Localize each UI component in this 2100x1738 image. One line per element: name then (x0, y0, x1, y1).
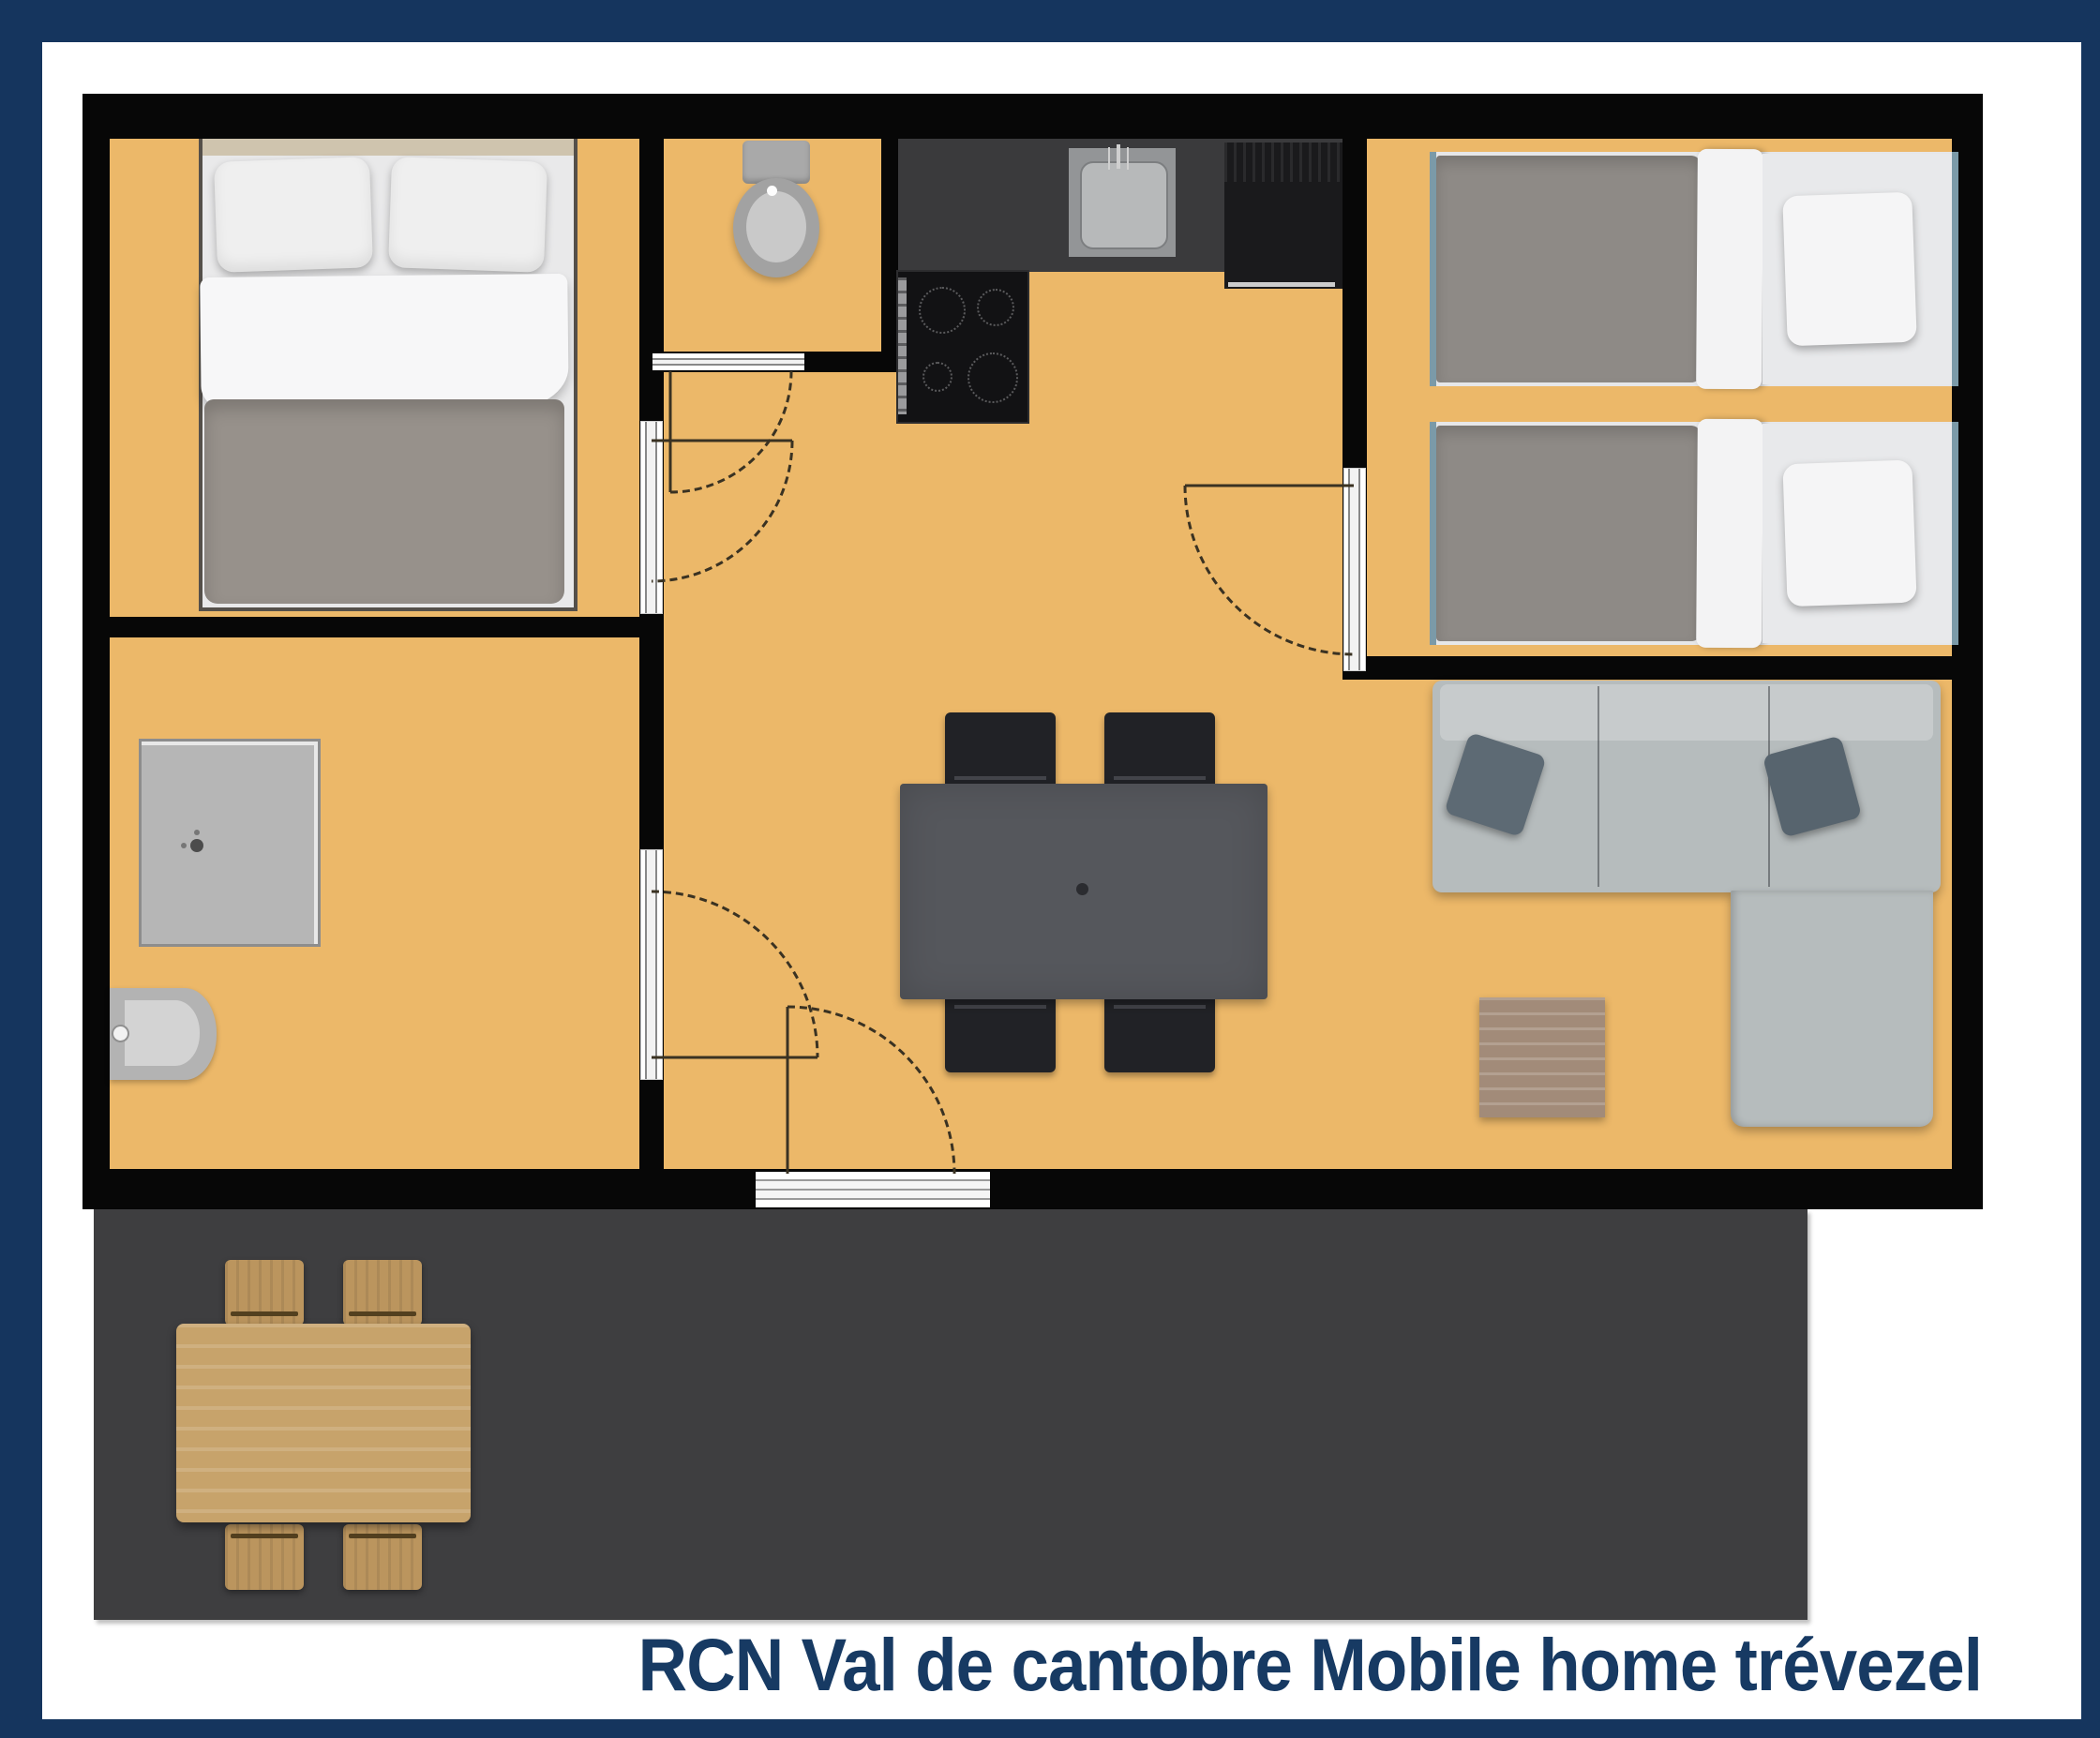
sofa-pillow (1762, 735, 1862, 837)
wall-twin-bedroom-bottom (1342, 656, 1952, 680)
bathroom-sink-basin (125, 1000, 200, 1066)
kitchen-sink-basin (1080, 161, 1168, 249)
dining-chair (1104, 992, 1215, 1072)
sofa-pillow (1444, 732, 1547, 837)
chair-back-line (349, 1534, 416, 1538)
door-entrance (756, 1172, 990, 1207)
burner-icon (919, 287, 966, 334)
bathroom-sink-faucet-icon (113, 1026, 127, 1041)
terrace-chair (343, 1524, 422, 1590)
dining-chair (1104, 712, 1215, 793)
terrace-chair (225, 1260, 304, 1326)
single-bed-sheet-fold (1696, 419, 1763, 648)
double-bed-sheet-fold (200, 274, 569, 414)
cooktop-controls (898, 277, 907, 414)
dining-chair (945, 712, 1056, 793)
chair-seat-line (1114, 776, 1206, 780)
terrace-table (176, 1324, 471, 1522)
chair-seat-line (954, 776, 1046, 780)
toilet (733, 178, 819, 277)
shower (139, 739, 321, 947)
burner-icon (922, 362, 952, 392)
caption-title: RCN Val de cantobre Mobile home trévezel (638, 1622, 1982, 1708)
sofa-backrest (1440, 684, 1933, 741)
double-bed-headboard (202, 139, 574, 156)
dining-table (900, 784, 1267, 999)
chair-back-line (231, 1534, 298, 1538)
pillow (214, 157, 373, 273)
bathroom-sink (110, 988, 217, 1080)
sofa-chaise-section (1731, 891, 1933, 1127)
rug (1479, 997, 1605, 1117)
door-master-bedroom (640, 421, 663, 614)
terrace-chair (343, 1260, 422, 1326)
chair-seat-line (954, 1005, 1046, 1009)
refrigerator (1224, 142, 1342, 289)
chair-seat-line (1114, 1005, 1206, 1009)
door-wc (652, 353, 804, 370)
shower-head-icon (190, 839, 203, 852)
sofa-main-section (1432, 681, 1941, 892)
toilet-bowl-inner (746, 191, 806, 262)
pillow (388, 157, 547, 273)
chair-back-line (231, 1311, 298, 1316)
chair-back-line (349, 1311, 416, 1316)
floor-plan-page: RCN Val de cantobre Mobile home trévezel (0, 0, 2100, 1738)
refrigerator-edge (1228, 282, 1335, 287)
dining-chair (945, 992, 1056, 1072)
single-bed-sheet-fold (1696, 149, 1763, 389)
toilet-flush-button-icon (767, 186, 777, 196)
single-bed-2 (1430, 422, 1958, 645)
double-bed-duvet (204, 399, 564, 604)
burner-icon (977, 289, 1014, 326)
cooktop (896, 270, 1029, 424)
terrace-chair (225, 1524, 304, 1590)
pillow (1782, 459, 1916, 607)
single-bed-1 (1430, 152, 1958, 386)
single-bed-duvet (1436, 156, 1701, 382)
burner-icon (967, 352, 1018, 403)
dining-table-center-detail (1076, 883, 1088, 895)
kitchen-sink (1069, 148, 1176, 257)
double-bed (199, 139, 577, 611)
kitchen-faucet-icon (1117, 144, 1120, 169)
door-twin-bedroom (1343, 468, 1366, 671)
door-bathroom (640, 849, 663, 1080)
wall-bedroom-bathroom (110, 617, 639, 637)
sofa-cushion-seam (1597, 686, 1599, 887)
single-bed-duvet (1436, 426, 1701, 641)
pillow (1782, 192, 1917, 347)
